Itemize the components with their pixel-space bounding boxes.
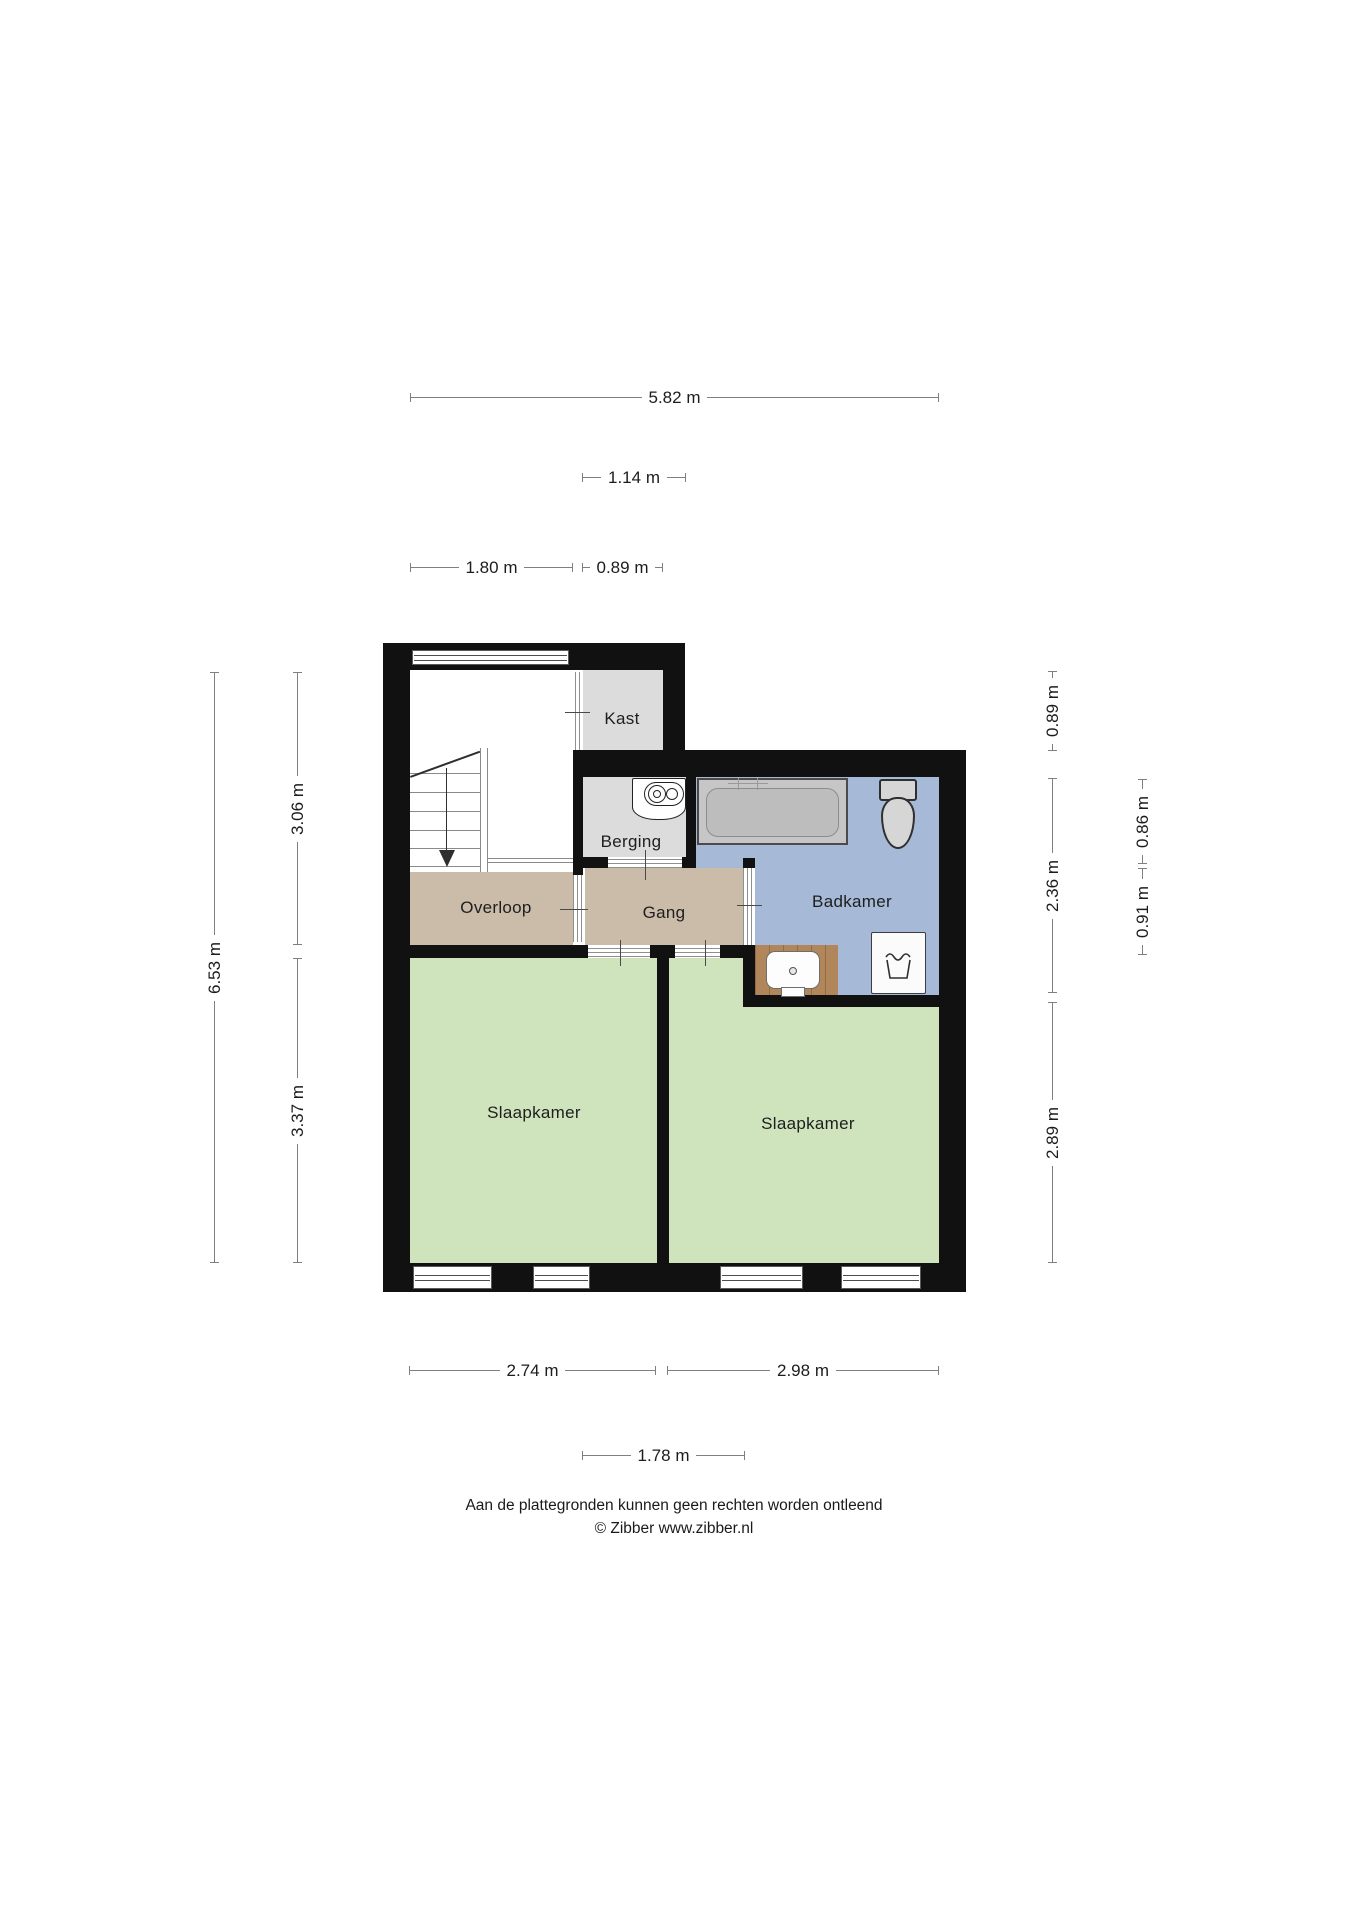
room-label-gang: Gang bbox=[643, 903, 686, 923]
window-bottom-2 bbox=[533, 1266, 590, 1289]
door-tick-kast bbox=[565, 712, 590, 713]
door-slaapkamer-right bbox=[675, 946, 720, 957]
window-top bbox=[412, 650, 569, 665]
dim-label: 2.36 m bbox=[1043, 853, 1063, 919]
dim-label: 3.06 m bbox=[288, 776, 308, 842]
floorplan-canvas: Kast Berging Overloop Gang Badkamer Slaa… bbox=[0, 0, 1358, 1920]
dim-label: 0.86 m bbox=[1133, 789, 1153, 855]
wall-left bbox=[383, 643, 410, 1292]
dim-label: 2.98 m bbox=[770, 1361, 836, 1381]
dim-label: 0.91 m bbox=[1133, 879, 1153, 945]
wall-badkamer-bottom bbox=[743, 995, 939, 1007]
window-glass bbox=[535, 1275, 588, 1281]
dim-label: 3.37 m bbox=[288, 1078, 308, 1144]
window-glass bbox=[414, 655, 567, 661]
dim-bottom-gang-width: 1.78 m bbox=[582, 1455, 745, 1456]
floor-slaapkamer-right-a bbox=[669, 958, 743, 1263]
stair-tread bbox=[410, 811, 480, 812]
bathtub-faucet-icon bbox=[757, 778, 758, 790]
dim-top-kast-width: 0.89 m bbox=[582, 567, 663, 568]
stair-landing-edge bbox=[487, 862, 573, 863]
dim-label: 1.14 m bbox=[601, 468, 667, 488]
wall-hall-bedroom-1 bbox=[383, 945, 588, 958]
dim-top-window-width: 1.80 m bbox=[410, 567, 573, 568]
room-label-berging: Berging bbox=[601, 832, 662, 852]
stair-stringer-line bbox=[487, 748, 488, 872]
dim-label: 1.80 m bbox=[459, 558, 525, 578]
wall-hall-bedroom-2 bbox=[650, 945, 675, 958]
wall-berging-bottom-r bbox=[682, 857, 696, 868]
stair-tread bbox=[410, 830, 480, 831]
wall-berging-right bbox=[686, 777, 696, 868]
floor-slaapkamer-right-b bbox=[743, 1005, 939, 1263]
dim-label: 5.82 m bbox=[642, 388, 708, 408]
dim-right-outer-upper: 0.86 m bbox=[1142, 779, 1143, 864]
wall-berging-bottom-l bbox=[573, 857, 608, 868]
dim-right-notch-height: 0.89 m bbox=[1052, 671, 1053, 751]
stairs-direction-arrow bbox=[446, 768, 447, 850]
window-bottom-3 bbox=[720, 1266, 803, 1289]
window-glass bbox=[843, 1275, 919, 1281]
door-kast bbox=[575, 672, 583, 750]
dim-label: 2.89 m bbox=[1043, 1100, 1063, 1166]
dim-bottom-bedroom-right: 2.98 m bbox=[667, 1370, 939, 1371]
laundry-symbol-icon bbox=[882, 948, 915, 982]
dim-top-total-width: 5.82 m bbox=[410, 397, 939, 398]
stair-stringer-line bbox=[480, 748, 481, 872]
door-gang-badkamer bbox=[743, 868, 755, 945]
dim-label: 2.74 m bbox=[500, 1361, 566, 1381]
door-slaapkamer-left bbox=[588, 946, 650, 957]
door-tick-berging bbox=[645, 850, 646, 880]
room-label-badkamer: Badkamer bbox=[812, 892, 892, 912]
boiler-ring-inner bbox=[653, 790, 661, 798]
door-tick-slaapkamer-left bbox=[620, 940, 621, 966]
disclaimer: Aan de plattegronden kunnen geen rechten… bbox=[0, 1494, 1348, 1540]
window-glass bbox=[722, 1275, 801, 1281]
dim-left-upper-height: 3.06 m bbox=[297, 672, 298, 945]
disclaimer-line: Aan de plattegronden kunnen geen rechten… bbox=[0, 1494, 1348, 1517]
dim-label: 0.89 m bbox=[1043, 678, 1063, 744]
stair-tread bbox=[410, 848, 480, 849]
dim-top-berging-width: 1.14 m bbox=[582, 477, 686, 478]
washbasin-drain-icon bbox=[789, 967, 797, 975]
bathtub-faucet-icon bbox=[738, 778, 739, 790]
bathtub-faucet-icon bbox=[728, 783, 768, 784]
room-label-slaapkamer-left: Slaapkamer bbox=[487, 1103, 581, 1123]
window-bottom-4 bbox=[841, 1266, 921, 1289]
dim-bottom-bedroom-left: 2.74 m bbox=[409, 1370, 656, 1371]
wall-right bbox=[939, 750, 966, 1292]
dim-left-lower-height: 3.37 m bbox=[297, 958, 298, 1263]
stair-tread bbox=[410, 792, 480, 793]
window-glass bbox=[415, 1275, 490, 1281]
wall-kast-right bbox=[663, 670, 685, 750]
wall-hall-bedroom-3 bbox=[720, 945, 755, 958]
room-label-overloop: Overloop bbox=[460, 898, 531, 918]
dim-label: 1.78 m bbox=[631, 1446, 697, 1466]
copyright-line: © Zibber www.zibber.nl bbox=[0, 1517, 1348, 1540]
window-bottom-1 bbox=[413, 1266, 492, 1289]
dim-label: 6.53 m bbox=[205, 935, 225, 1001]
door-tick-gang-badkamer bbox=[737, 905, 762, 906]
dim-right-outer-lower: 0.91 m bbox=[1142, 868, 1143, 955]
door-tick-overloop-gang bbox=[560, 909, 588, 910]
dim-label: 0.89 m bbox=[590, 558, 656, 578]
door-tick-slaapkamer-right bbox=[705, 940, 706, 966]
wall-gang-right-top bbox=[743, 858, 755, 868]
boiler-ring-small bbox=[666, 788, 678, 800]
washbasin-pedestal bbox=[781, 987, 805, 997]
dim-right-badkamer-height: 2.36 m bbox=[1052, 778, 1053, 993]
stair-landing-edge bbox=[487, 858, 573, 859]
room-label-kast: Kast bbox=[604, 709, 639, 729]
dim-right-bedroom-height: 2.89 m bbox=[1052, 1002, 1053, 1263]
room-label-slaapkamer-right: Slaapkamer bbox=[761, 1114, 855, 1134]
wall-bedroom-divider bbox=[657, 958, 669, 1263]
stairs-arrow-head-icon bbox=[439, 850, 455, 867]
wall-bathroom-top bbox=[573, 750, 966, 777]
dim-left-total-height: 6.53 m bbox=[214, 672, 215, 1263]
bathtub-inner bbox=[706, 788, 839, 837]
